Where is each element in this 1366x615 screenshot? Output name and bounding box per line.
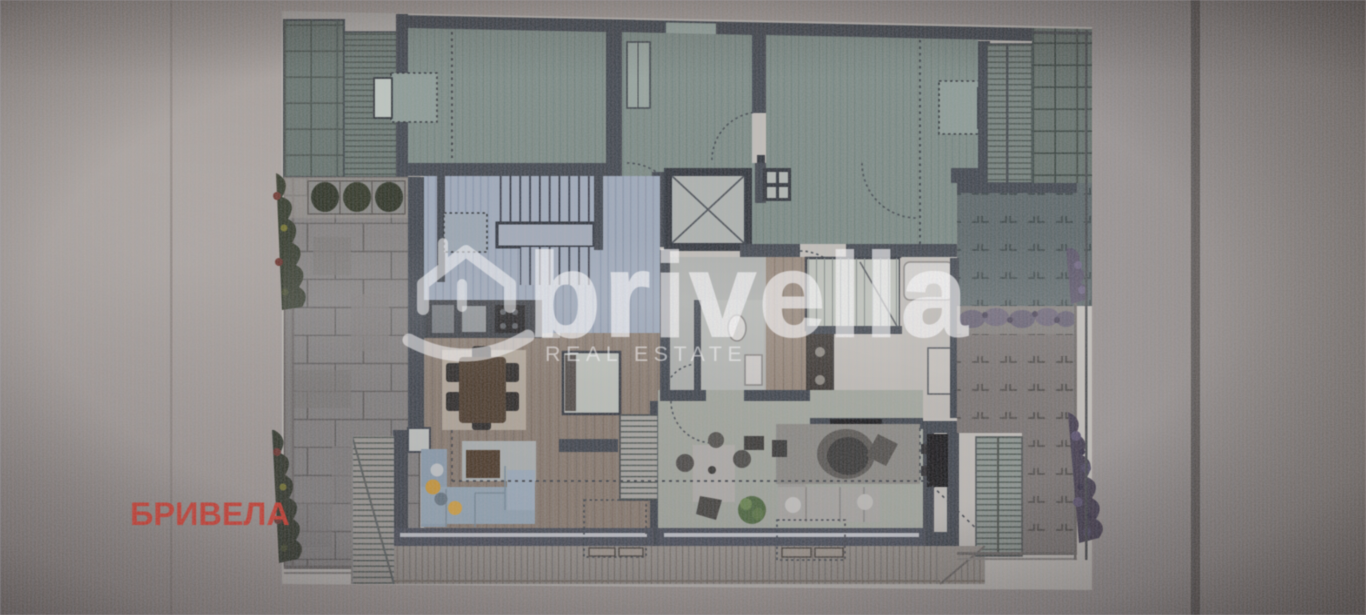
svg-text:БРИВЕЛА: БРИВЕЛА xyxy=(130,496,290,532)
svg-text:REAL ESTATE: REAL ESTATE xyxy=(545,342,747,366)
